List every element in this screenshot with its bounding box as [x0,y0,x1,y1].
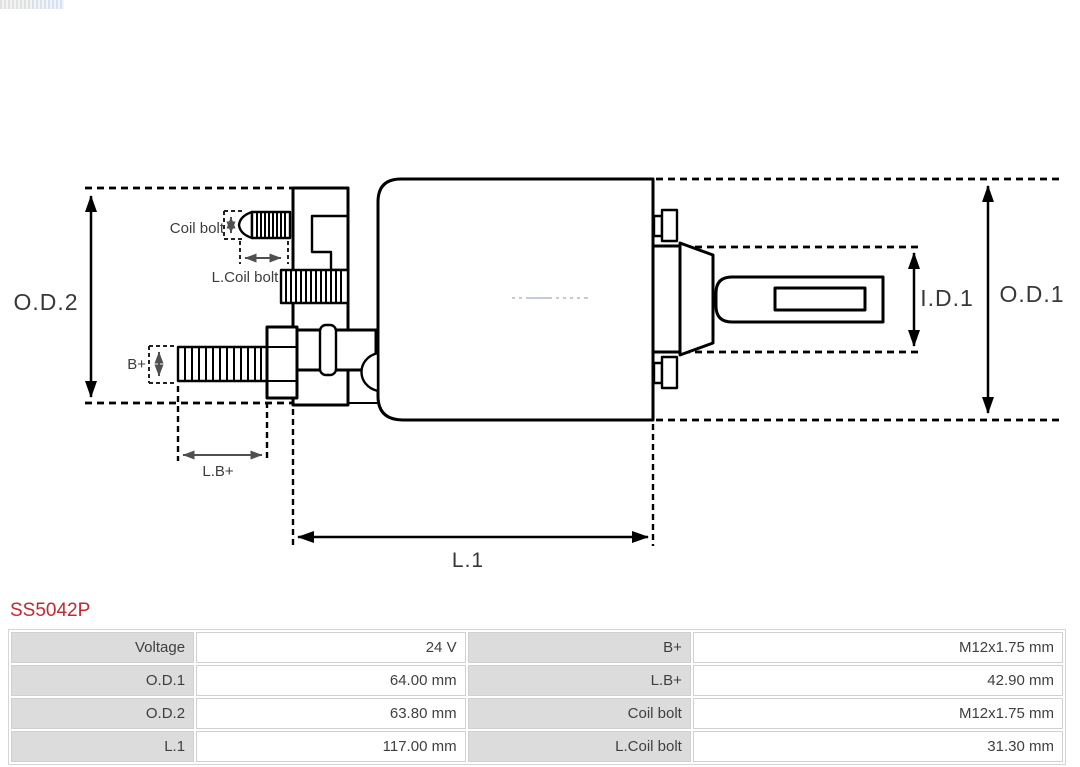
spec-value-cell: M12x1.75 mm [693,698,1063,729]
l1-label: L.1 [452,549,484,572]
rod-slot [775,288,865,310]
terminal-top [662,210,677,241]
spec-value-cell: 117.00 mm [196,731,466,762]
spec-row: Voltage 24 V B+ M12x1.75 mm [11,632,1063,663]
spec-value-cell: 63.80 mm [196,698,466,729]
spec-value-cell: 42.90 mm [693,665,1063,696]
spec-row: O.D.2 63.80 mm Coil bolt M12x1.75 mm [11,698,1063,729]
product-page: O.D.2 O.D.1 I.D.1 L.1 Coil bolt L.Coil b… [0,0,1080,767]
solenoid-body [378,179,653,420]
spec-row: O.D.1 64.00 mm L.B+ 42.90 mm [11,665,1063,696]
spec-label-cell: L.1 [11,731,194,762]
terminal-bottom [662,357,677,388]
od1-label: O.D.1 [999,281,1064,307]
spec-label-cell: Coil bolt [468,698,691,729]
b-plus-label: B+ [127,356,146,373]
coil-bolt-label: Coil bolt [170,220,225,237]
spec-table: Voltage 24 V B+ M12x1.75 mm O.D.1 64.00 … [8,629,1066,765]
spec-value-cell: 64.00 mm [196,665,466,696]
lb-plus-label: L.B+ [202,463,234,480]
spec-row: L.1 117.00 mm L.Coil bolt 31.30 mm [11,731,1063,762]
od2-label: O.D.2 [13,289,78,315]
thread-bushing [281,270,348,303]
spec-label-cell: O.D.1 [11,665,194,696]
part-number: SS5042P [10,600,90,622]
spec-label-cell: Voltage [11,632,194,663]
spec-value-cell: 31.30 mm [693,731,1063,762]
spec-label-cell: O.D.2 [11,698,194,729]
coil-bolt [239,212,290,238]
spec-label-cell: L.Coil bolt [468,731,691,762]
spec-value-cell: 24 V [196,632,466,663]
spec-label-cell: B+ [468,632,691,663]
plunger-cone [680,243,713,355]
l-coil-bolt-label: L.Coil bolt [212,269,280,286]
technical-drawing: O.D.2 O.D.1 I.D.1 L.1 Coil bolt L.Coil b… [0,0,1080,590]
b-plus-nut [267,327,297,398]
spec-label-cell: L.B+ [468,665,691,696]
b-plus-washer [320,325,336,375]
id1-label: I.D.1 [920,285,974,311]
plunger-assembly [653,210,883,388]
spec-value-cell: M12x1.75 mm [693,632,1063,663]
plunger-flange [653,246,680,352]
